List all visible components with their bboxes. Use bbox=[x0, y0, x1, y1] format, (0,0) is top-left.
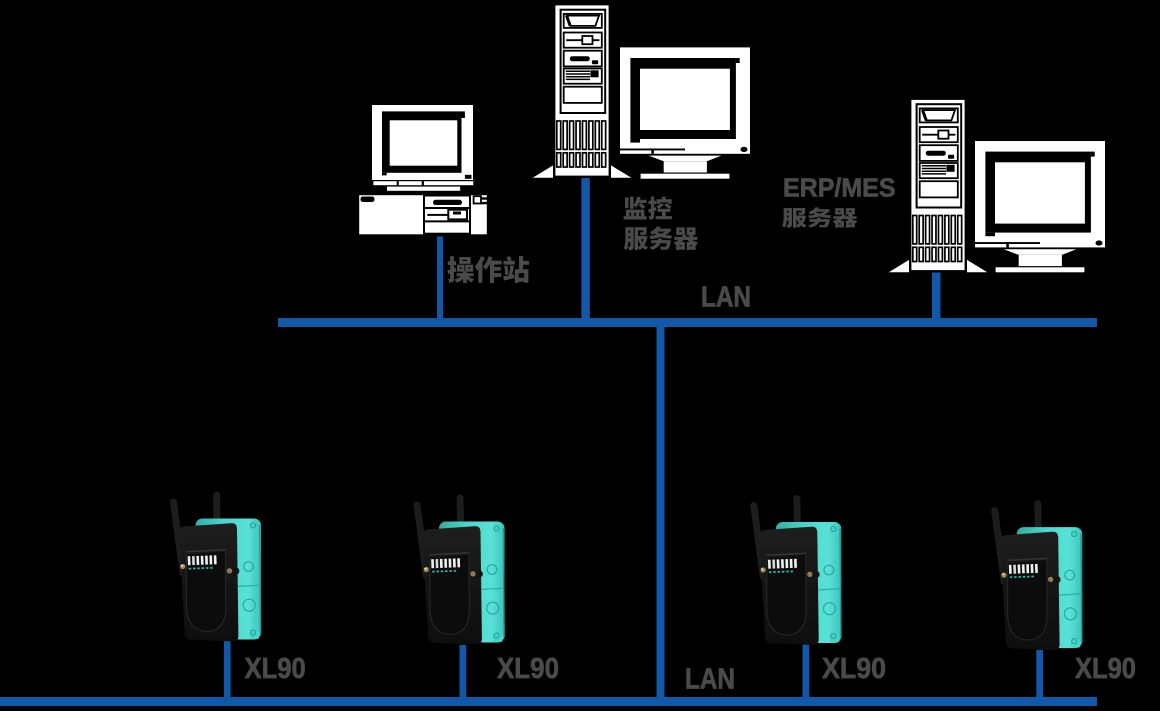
svg-text:XL90: XL90 bbox=[245, 653, 306, 685]
svg-text:ERP/MES: ERP/MES bbox=[783, 173, 896, 203]
svg-text:LAN: LAN bbox=[701, 281, 751, 313]
svg-text:XL90: XL90 bbox=[1075, 653, 1136, 685]
svg-text:XL90: XL90 bbox=[497, 653, 559, 685]
svg-text:LAN: LAN bbox=[685, 664, 735, 696]
svg-text:XL90: XL90 bbox=[822, 653, 886, 685]
